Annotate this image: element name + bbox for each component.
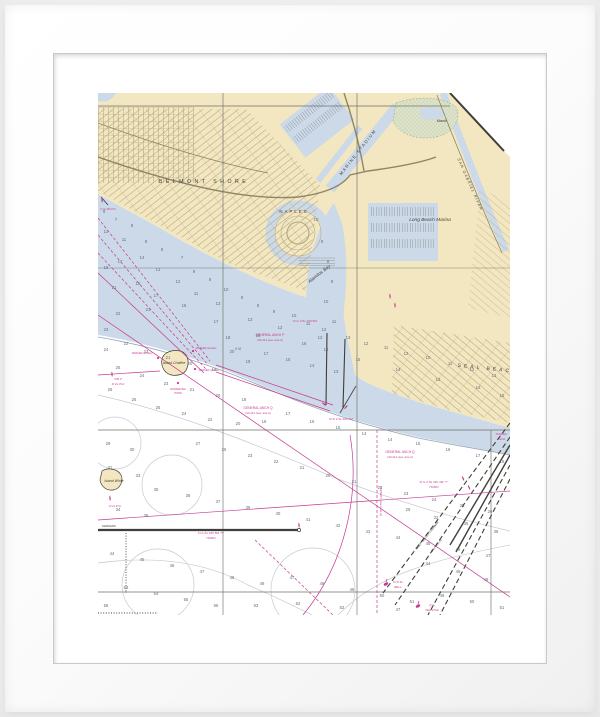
chart-label: 110.214 (see note A) bbox=[257, 338, 283, 342]
sounding: 12 bbox=[278, 325, 283, 330]
sounding: 22 bbox=[274, 459, 279, 464]
sounding: 47 bbox=[290, 575, 295, 580]
sounding: 11 bbox=[194, 291, 199, 296]
chart-label: NAPLES bbox=[279, 209, 308, 214]
sounding: 14 bbox=[388, 437, 393, 442]
sounding: 25 bbox=[222, 447, 227, 452]
sounding: 15 bbox=[286, 357, 291, 362]
sounding: 33 bbox=[136, 473, 141, 478]
sounding: 17 bbox=[118, 259, 123, 264]
sounding: 18 bbox=[104, 265, 109, 270]
sounding: 30 bbox=[130, 447, 135, 452]
sounding: 21 bbox=[112, 285, 117, 290]
sounding: 14 bbox=[140, 255, 145, 260]
sounding: 19 bbox=[212, 367, 217, 372]
sounding: 55 bbox=[184, 597, 189, 602]
sounding: 47 bbox=[486, 553, 491, 558]
sounding: 25 bbox=[460, 503, 465, 508]
chart-label: Fl G 2.5s 31ft 4M "Y" bbox=[420, 480, 449, 484]
chart-label: 110.214 (see note A) bbox=[387, 455, 413, 459]
sounding: 21 bbox=[190, 387, 195, 392]
sounding: 50 bbox=[380, 593, 385, 598]
sounding: 12 bbox=[104, 229, 109, 234]
sounding: 23 bbox=[144, 349, 149, 354]
chart-label: MARKER Bell bbox=[170, 388, 186, 391]
sounding: 22 bbox=[208, 417, 213, 422]
sounding: 15 bbox=[336, 425, 341, 430]
chart-label: ANCH bbox=[497, 437, 505, 441]
sounding: 10 bbox=[314, 217, 319, 222]
sounding: 12 bbox=[318, 335, 323, 340]
chart-label: HORN bbox=[174, 392, 182, 395]
chart-label: GENERAL ANCH Q bbox=[385, 450, 415, 454]
sounding: 13 bbox=[334, 369, 339, 374]
sounding: 20 bbox=[216, 393, 221, 398]
sounding: 13 bbox=[156, 267, 161, 272]
sounding: 32 bbox=[434, 515, 439, 520]
sounding: 23 bbox=[404, 491, 409, 496]
chart-label: WHISTLE bbox=[425, 608, 438, 612]
sounding: 11 bbox=[122, 237, 127, 242]
sounding: 49 bbox=[350, 587, 355, 592]
sounding: 56 bbox=[214, 603, 219, 608]
sounding: 21 bbox=[352, 479, 357, 484]
sounding: 47 bbox=[396, 607, 401, 612]
chart-label: MARKER (private) bbox=[132, 352, 153, 355]
sounding: 13 bbox=[346, 335, 351, 340]
chart-label: 6 M bbox=[235, 347, 241, 351]
chart-label: FAIRWAY (see note A) bbox=[379, 486, 383, 516]
chart-label: BELL bbox=[394, 585, 402, 589]
chart-label: Island Chaffee bbox=[163, 361, 186, 365]
sounding: 49 bbox=[260, 581, 265, 586]
sounding: 18 bbox=[136, 281, 141, 286]
sounding: 11 bbox=[332, 319, 337, 324]
sounding: 37 bbox=[216, 499, 221, 504]
sounding: 15 bbox=[416, 441, 421, 446]
sounding: 27 bbox=[196, 441, 201, 446]
sounding: 17 bbox=[154, 293, 159, 298]
sounding: 15 bbox=[356, 357, 361, 362]
sounding: 36 bbox=[144, 513, 149, 518]
sounding: 20 bbox=[188, 361, 193, 366]
sounding: 12 bbox=[322, 327, 327, 332]
sounding: 26 bbox=[132, 397, 137, 402]
sounding: 24 bbox=[182, 411, 187, 416]
sounding: 17 bbox=[214, 319, 219, 324]
sounding: 18 bbox=[242, 397, 247, 402]
sounding: 21 bbox=[166, 355, 171, 360]
sounding: 21 bbox=[146, 307, 151, 312]
sounding: 50 bbox=[470, 599, 475, 604]
sounding: 12 bbox=[364, 341, 369, 346]
chart-label: Island White bbox=[104, 479, 123, 483]
sounding: 53 bbox=[124, 585, 129, 590]
sounding: 14 bbox=[324, 347, 329, 352]
sounding: 38 bbox=[494, 529, 499, 534]
sounding: 38 bbox=[246, 505, 251, 510]
sounding: 52 bbox=[296, 601, 301, 606]
sounding: 23 bbox=[104, 327, 109, 332]
chart-label: Fl 2s Priv bbox=[112, 382, 125, 386]
sounding: 20 bbox=[236, 421, 241, 426]
sounding: 22 bbox=[116, 311, 121, 316]
sounding: 23 bbox=[164, 381, 169, 386]
sounding: 10 bbox=[324, 299, 329, 304]
sounding: 23 bbox=[248, 453, 253, 458]
sounding: 54 bbox=[154, 591, 159, 596]
chart-label: MARKERS bbox=[102, 524, 116, 528]
sounding: 25 bbox=[116, 365, 121, 370]
sounding: 53 bbox=[254, 603, 259, 608]
sounding: 48 bbox=[484, 577, 489, 582]
sounding: 13 bbox=[248, 317, 253, 322]
chart-label: MARKER (private) bbox=[196, 347, 217, 350]
sounding: 46 bbox=[170, 563, 175, 568]
sounding: 24 bbox=[140, 373, 145, 378]
chart-label: Fl R 4s bbox=[393, 580, 403, 584]
sounding: 34 bbox=[116, 507, 121, 512]
sounding: 43 bbox=[366, 529, 371, 534]
chart-label: BELMONT SHORE bbox=[159, 179, 249, 185]
chart-label: GENERAL ANCH Q bbox=[243, 406, 273, 410]
sounding: 12 bbox=[404, 351, 409, 356]
chart-label: Fl G 6s 42ft 5M "T" bbox=[198, 531, 224, 535]
sounding: 44 bbox=[110, 551, 115, 556]
chart-label: 110.214 (see note A) bbox=[245, 411, 271, 415]
chart-label: HORN bbox=[429, 485, 438, 489]
sounding: 10 bbox=[426, 355, 431, 360]
sounding: 44 bbox=[396, 535, 401, 540]
sounding: 46 bbox=[456, 569, 461, 574]
sounding: 49 bbox=[440, 593, 445, 598]
sounding: 15 bbox=[256, 333, 261, 338]
sounding: 15 bbox=[500, 393, 505, 398]
sounding: 46 bbox=[456, 547, 461, 552]
sounding: 12 bbox=[470, 367, 475, 372]
sounding: 16 bbox=[310, 419, 315, 424]
sounding: 48 bbox=[320, 581, 325, 586]
chart-label: Long Beach Marina bbox=[409, 217, 451, 223]
sounding: 10 bbox=[292, 313, 297, 318]
sounding: 35 bbox=[154, 487, 159, 492]
sounding: 51 bbox=[500, 605, 505, 610]
sounding: 40 bbox=[276, 511, 281, 516]
sounding: 22 bbox=[124, 341, 129, 346]
sounding: 17 bbox=[264, 351, 269, 356]
sounding: 18 bbox=[500, 459, 505, 464]
sounding: 20 bbox=[230, 349, 235, 354]
sounding: 47 bbox=[200, 569, 205, 574]
sounding: 17 bbox=[476, 453, 481, 458]
chart-label: Marsh bbox=[437, 119, 448, 123]
sounding: 24 bbox=[104, 347, 109, 352]
sounding: 14 bbox=[310, 363, 315, 368]
chart-paper: BELMONT SHORENAPLESMARINE STADIUMAlamito… bbox=[98, 93, 510, 615]
sounding: 16 bbox=[302, 341, 307, 346]
sounding: 56 bbox=[104, 603, 109, 608]
sounding: 51 bbox=[410, 599, 415, 604]
sounding: 19 bbox=[246, 359, 251, 364]
sounding: 26 bbox=[488, 509, 493, 514]
sounding: 35 bbox=[464, 521, 469, 526]
sounding: 13 bbox=[492, 373, 497, 378]
sounding: 11 bbox=[306, 321, 311, 326]
sounding: 21 bbox=[300, 465, 305, 470]
sounding: 14 bbox=[396, 367, 401, 372]
sounding: 45 bbox=[426, 541, 431, 546]
sounding: 12 bbox=[176, 279, 181, 284]
sounding: 13 bbox=[216, 301, 221, 306]
chart-label: Fl R 2.5s 20ft 4M bbox=[329, 417, 353, 421]
sounding: 11 bbox=[384, 345, 389, 350]
sounding: 25 bbox=[156, 405, 161, 410]
sounding: 22 bbox=[378, 485, 383, 490]
sounding: 18 bbox=[262, 419, 267, 424]
sounding: 10 bbox=[224, 287, 229, 292]
sounding: 41 bbox=[306, 517, 311, 522]
sounding: 17 bbox=[286, 411, 291, 416]
sounding: 11 bbox=[448, 361, 453, 366]
sounding: 52 bbox=[340, 605, 345, 610]
chart-label: HORN bbox=[206, 536, 215, 540]
sounding: 29 bbox=[106, 441, 111, 446]
chart-label: TANKER bbox=[495, 432, 507, 436]
nautical-chart: BELMONT SHORENAPLESMARINE STADIUMAlamito… bbox=[98, 93, 510, 615]
sounding: 13 bbox=[436, 377, 441, 382]
sounding: 48 bbox=[230, 575, 235, 580]
sounding: 31 bbox=[108, 465, 113, 470]
sounding: 29 bbox=[406, 507, 411, 512]
sounding: 16 bbox=[446, 447, 451, 452]
sounding: 24 bbox=[432, 497, 437, 502]
sounding: 42 bbox=[336, 523, 341, 528]
sounding: 18 bbox=[226, 335, 231, 340]
sounding: 44 bbox=[426, 561, 431, 566]
sounding: 36 bbox=[186, 493, 191, 498]
chart-label: "OB 2" bbox=[114, 377, 124, 381]
sounding: 16 bbox=[182, 303, 187, 308]
chart-label: Q G bbox=[429, 603, 435, 607]
sounding: 20 bbox=[326, 473, 331, 478]
sounding: 14 bbox=[476, 385, 481, 390]
sounding: 26 bbox=[108, 387, 113, 392]
sounding: 14 bbox=[362, 431, 367, 436]
sounding: 45 bbox=[140, 557, 145, 562]
